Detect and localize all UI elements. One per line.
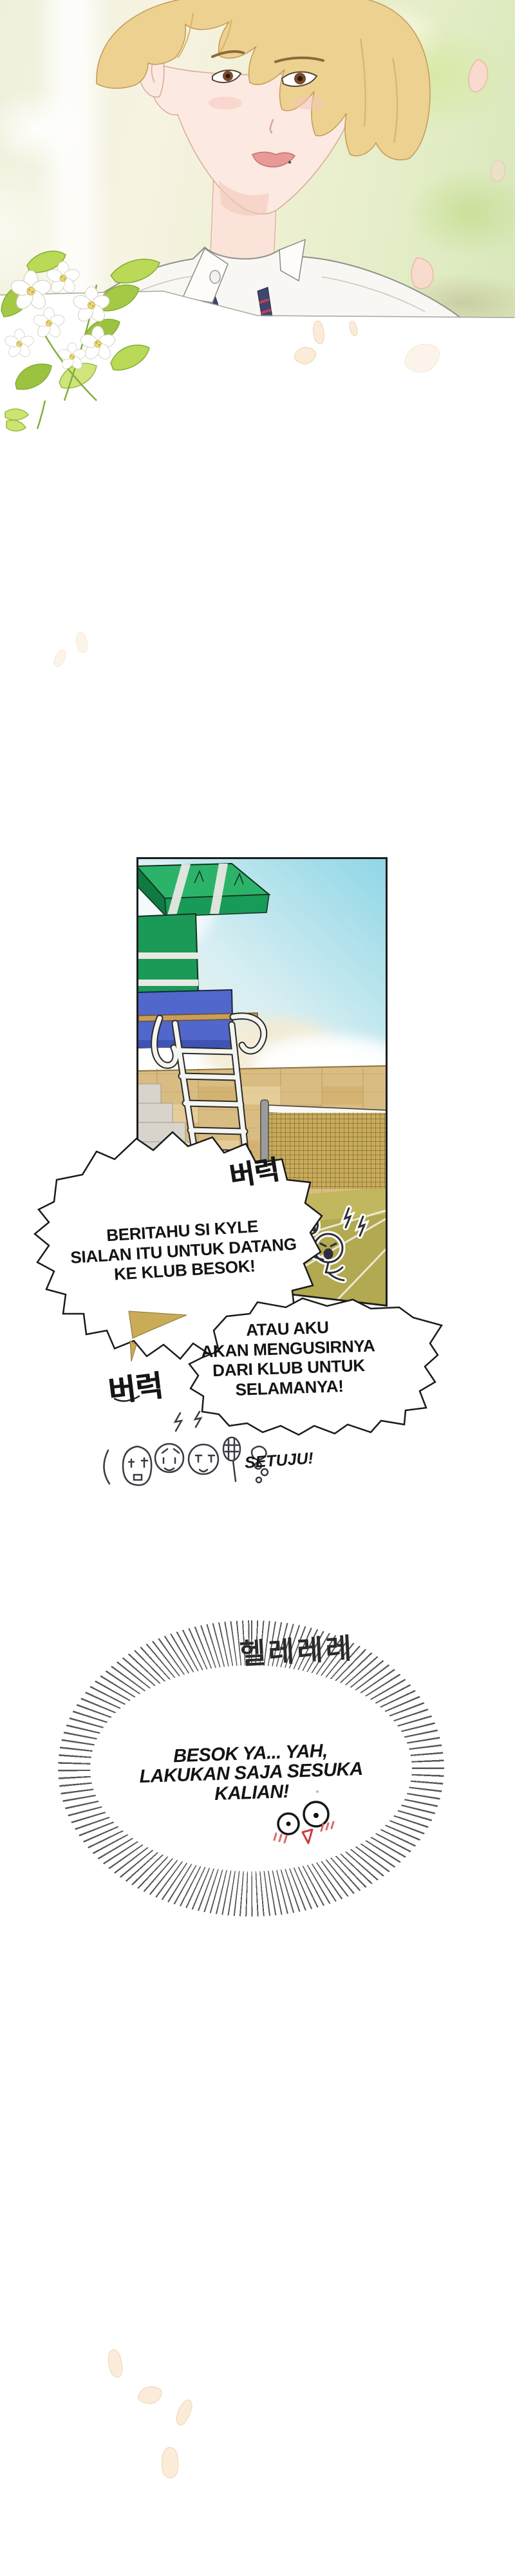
green-back-strap <box>136 980 198 986</box>
leaf <box>15 364 51 389</box>
sfx-tremble: 헬레레레 <box>238 1625 355 1672</box>
collar-button <box>210 270 220 283</box>
bracket-arc <box>104 1450 109 1484</box>
beauty-mark <box>288 161 291 164</box>
falling-petal <box>137 2385 163 2406</box>
falling-petal <box>73 631 91 654</box>
pupil-dot-right <box>314 1813 319 1818</box>
falling-petal <box>292 343 318 367</box>
white-flower <box>71 287 111 324</box>
tiny-dot <box>316 1790 319 1793</box>
falling-petal <box>104 2348 127 2380</box>
pink-petal <box>491 160 505 182</box>
white-flower-cluster <box>0 246 174 439</box>
blush-right <box>292 97 326 109</box>
doodle-face-2-features <box>162 1449 179 1470</box>
falling-petal <box>174 2398 194 2427</box>
doodle-face-2 <box>155 1444 183 1472</box>
blush-left <box>209 97 242 109</box>
red-triangle-mouth <box>303 1830 312 1843</box>
doodle-crowd <box>90 1404 315 1494</box>
white-flower <box>32 307 66 339</box>
webtoon-page: BERITAHU SI KYLE SIALAN ITU UNTUK DATANG… <box>0 0 515 2576</box>
falling-petal <box>158 2446 182 2480</box>
pink-petal <box>469 59 488 92</box>
doodle-racket <box>223 1437 240 1461</box>
speech-bubble-3-text: BESOK YA... YAH, LAKUKAN SAJA SESUKA KAL… <box>109 1739 394 1808</box>
sfx-shout-1: 버럭 <box>227 1148 282 1194</box>
pupil-dot-left <box>286 1822 291 1826</box>
leaf-sprig <box>5 409 28 431</box>
leaf <box>111 345 149 370</box>
speech-bubble-2-text: ATAU AKU AKAN MENGUSIRNYA DARI KLUB UNTU… <box>191 1316 386 1401</box>
blush-ticks-left <box>274 1833 286 1842</box>
pupil-left <box>226 74 230 79</box>
pupil-right <box>297 76 303 81</box>
court-scrap <box>130 1341 136 1361</box>
shocked-face-doodle <box>267 1781 344 1851</box>
lightning-doodle <box>175 1412 201 1431</box>
doodle-face-3-features <box>196 1455 214 1472</box>
doodle-face-1-features <box>129 1458 147 1480</box>
white-flower <box>3 329 35 359</box>
green-back-strap <box>136 952 198 959</box>
leaf <box>111 259 160 283</box>
falling-petal <box>403 341 441 375</box>
doodle-face-3 <box>189 1444 218 1474</box>
falling-petal <box>53 648 67 668</box>
